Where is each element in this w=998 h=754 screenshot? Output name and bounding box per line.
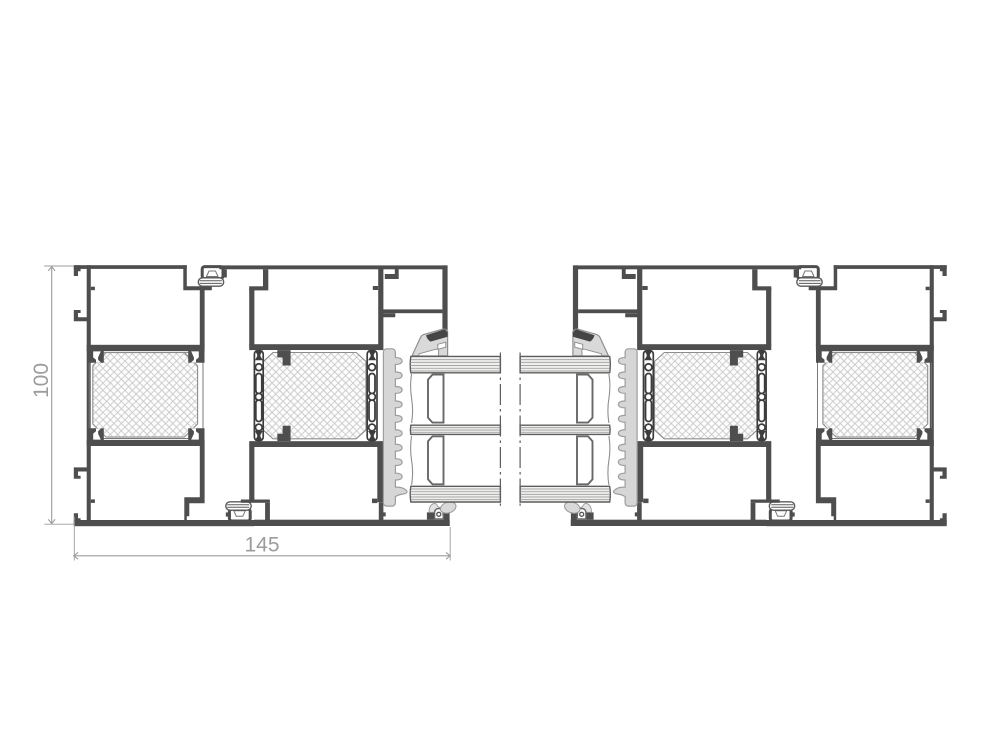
svg-text:100: 100 xyxy=(30,363,53,398)
svg-text:145: 145 xyxy=(244,534,279,557)
